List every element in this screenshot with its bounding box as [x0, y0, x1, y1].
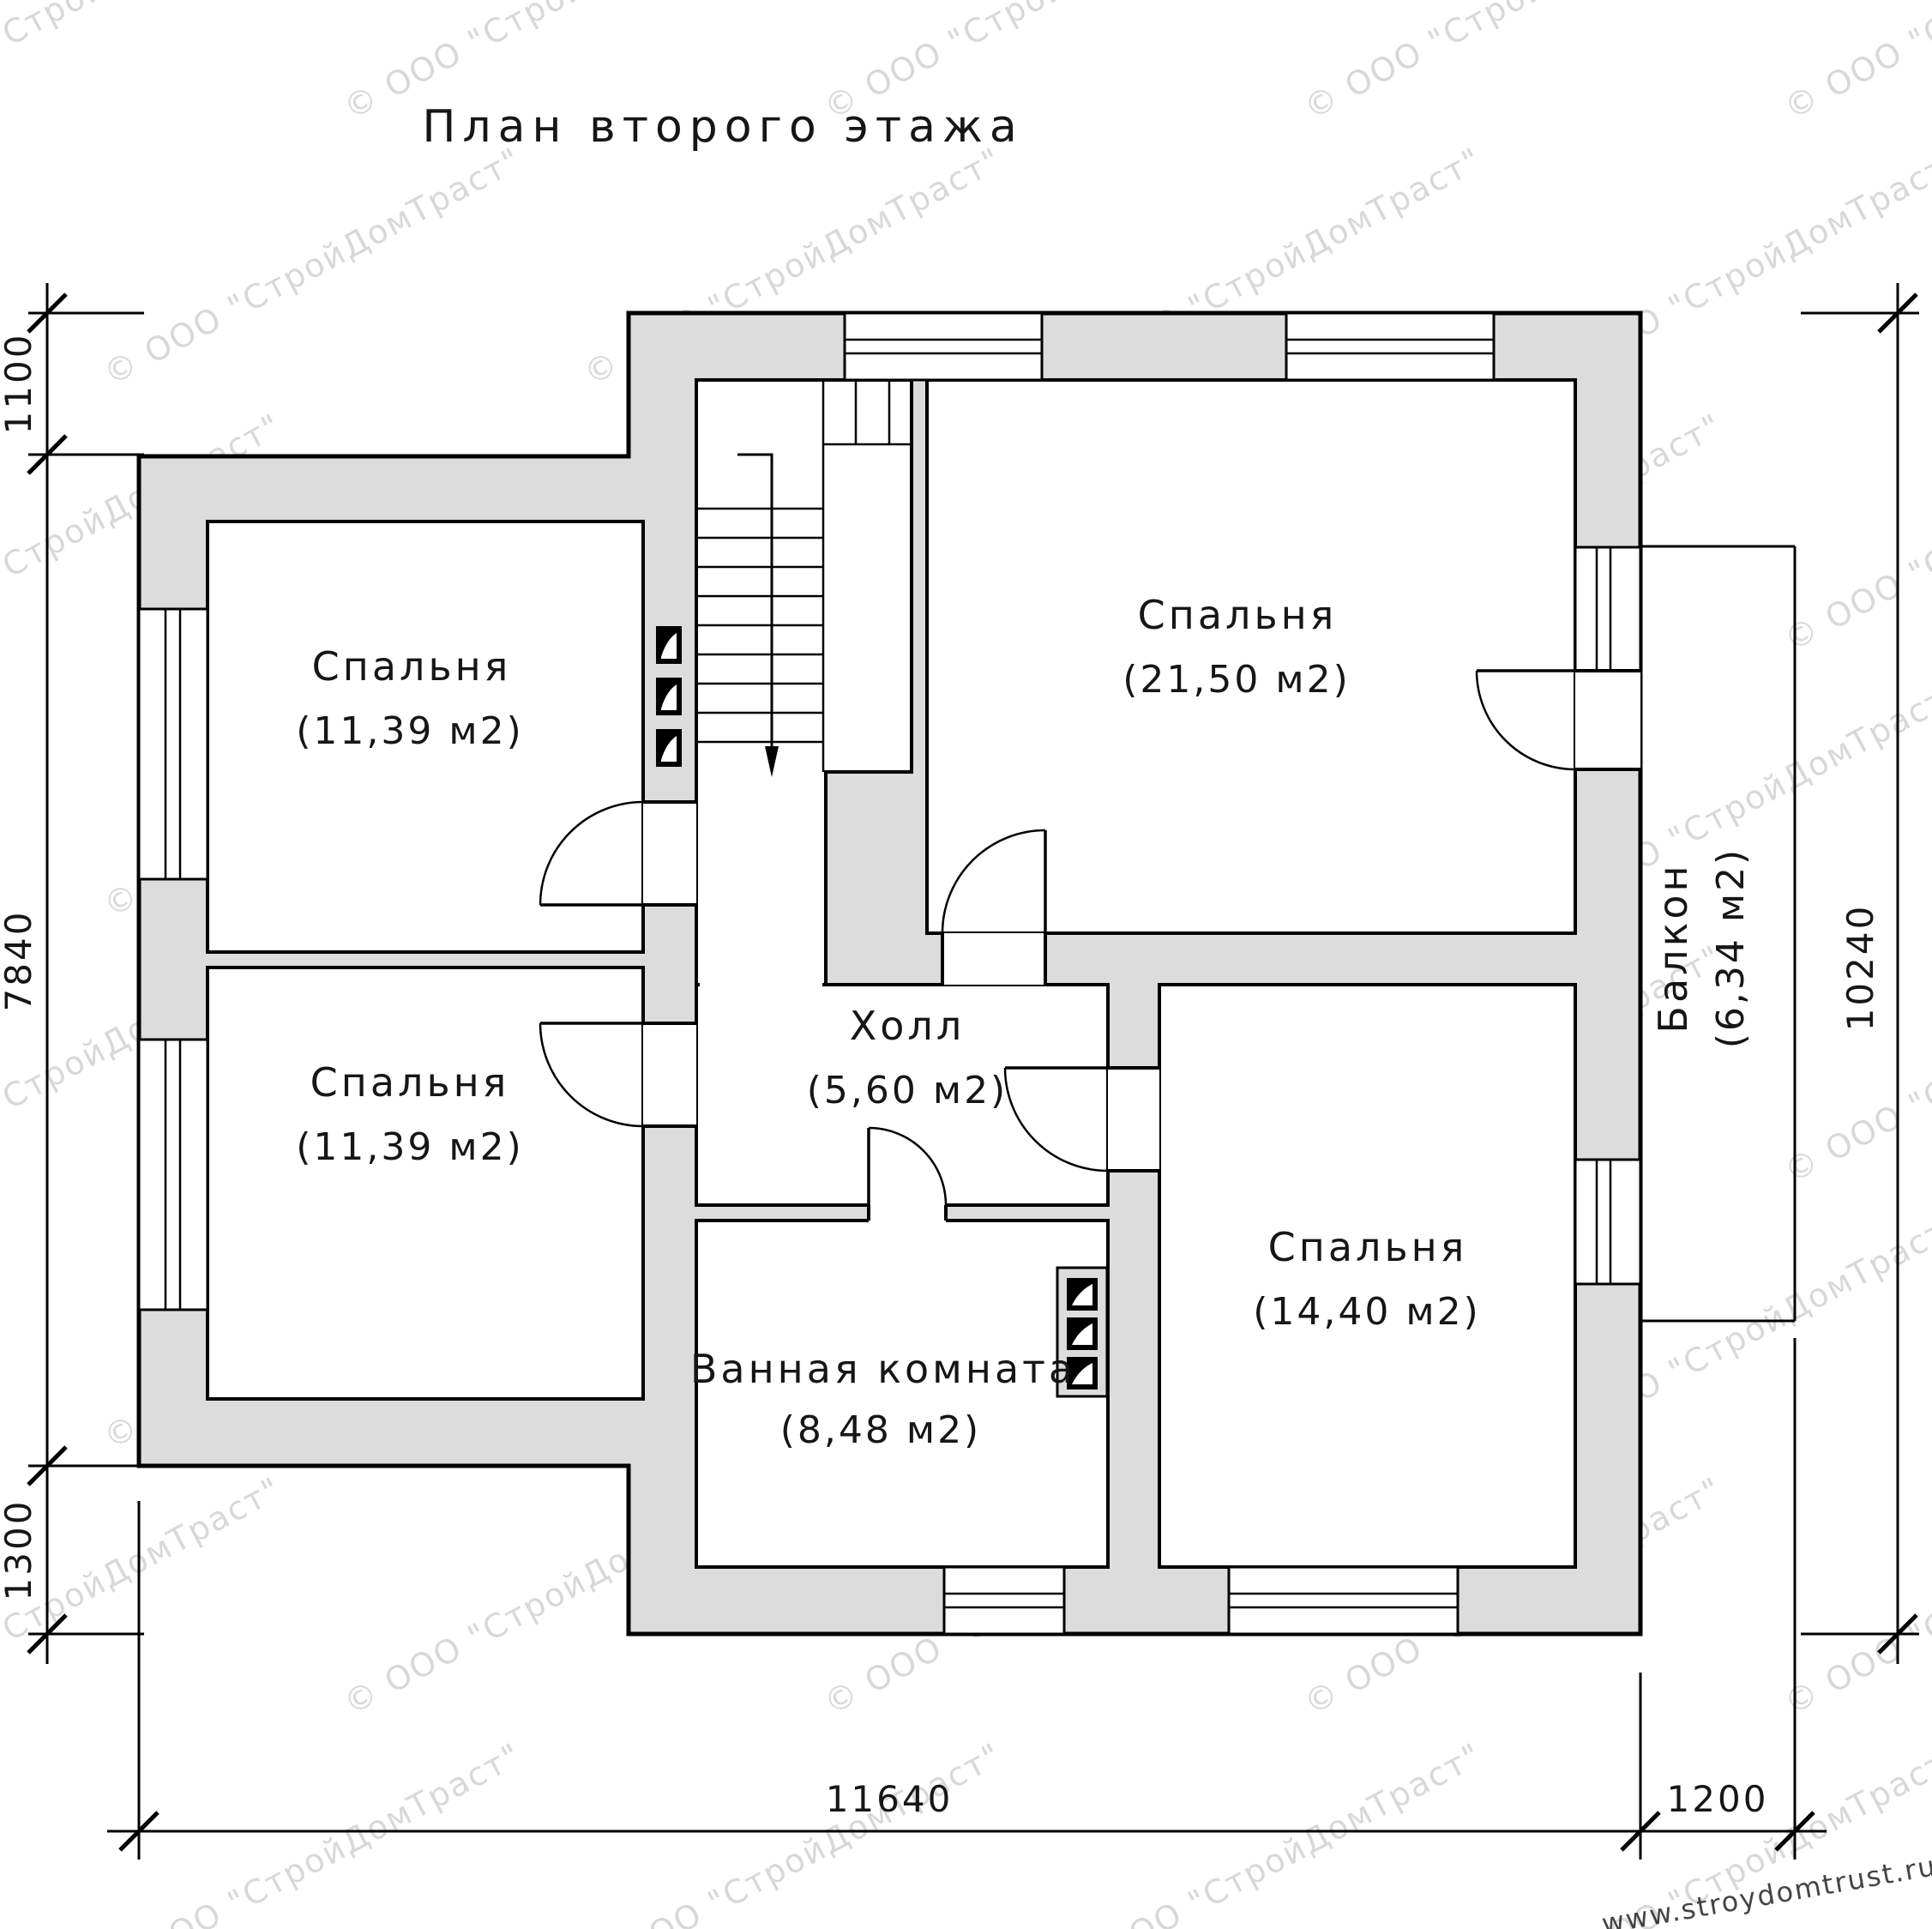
dim-10240: 10240	[1839, 904, 1881, 1032]
dim-1100: 1100	[0, 333, 39, 435]
copyright-watermark: © ООО "СтройДомТраст"	[1779, 0, 1932, 127]
dim-11640: 11640	[826, 1778, 954, 1820]
window-top-1	[845, 313, 1042, 380]
copyright-watermark: © ООО "СтройДомТраст"	[1298, 0, 1729, 127]
room-bedroom-right	[927, 380, 1575, 933]
area-bedroom-top-left: (11,39 м2)	[296, 709, 523, 753]
label-balcony: Балкон	[1650, 862, 1696, 1033]
label-bedroom-bottom-right: Спальня	[1268, 1224, 1468, 1270]
area-bedroom-right: (21,50 м2)	[1122, 658, 1350, 702]
dimension-right: 10240	[1801, 283, 1919, 1664]
label-bedroom-top-left: Спальня	[312, 643, 512, 690]
dim-1300: 1300	[0, 1499, 39, 1601]
window-left-bottom	[139, 1040, 208, 1310]
area-hall: (5,60 м2)	[807, 1069, 1008, 1112]
vent-shaft-stairs-icon	[656, 626, 682, 767]
area-bathroom: (8,48 м2)	[780, 1408, 981, 1452]
label-bedroom-bottom-left: Спальня	[310, 1059, 510, 1106]
dim-7840: 7840	[0, 910, 39, 1012]
area-bedroom-bottom-left: (11,39 м2)	[296, 1125, 523, 1169]
copyright-watermark: © ООО "СтройДомТраст"	[1779, 1469, 1932, 1722]
dim-1200: 1200	[1667, 1778, 1769, 1820]
page-title: План второго этажа	[422, 101, 1023, 153]
label-bathroom: Ванная комната	[690, 1346, 1076, 1392]
window-bottom-bathroom	[944, 1567, 1064, 1634]
room-bedroom-bottom-left	[208, 968, 643, 1399]
window-left-top	[139, 609, 208, 879]
window-right-upper	[1575, 547, 1640, 671]
copyright-watermark: © ООО "СтройДомТраст"	[0, 1469, 287, 1722]
room-bathroom	[696, 1221, 1108, 1567]
stair-opening	[700, 930, 822, 988]
area-bedroom-bottom-right: (14,40 м2)	[1253, 1290, 1480, 1334]
window-right-lower	[1575, 1160, 1640, 1284]
floor-plan-page: © ООО "СтройДомТраст"© ООО "СтройДомТрас…	[0, 0, 1932, 1929]
floor-plan-canvas: © ООО "СтройДомТраст"© ООО "СтройДомТрас…	[0, 0, 1932, 1929]
room-bedroom-bottom-right	[1159, 985, 1575, 1567]
copyright-watermark: © ООО "СтройДомТраст"	[0, 0, 287, 127]
window-bottom-bedroom	[1229, 1567, 1458, 1634]
copyright-watermark: © ООО "СтройДомТраст"	[98, 140, 528, 393]
copyright-watermark: © ООО "СтройДомТраст"	[1779, 406, 1932, 659]
label-hall: Холл	[850, 1003, 965, 1049]
area-balcony: (6,34 м2)	[1709, 847, 1753, 1048]
label-bedroom-right: Спальня	[1138, 592, 1338, 638]
window-top-2	[1286, 313, 1494, 380]
